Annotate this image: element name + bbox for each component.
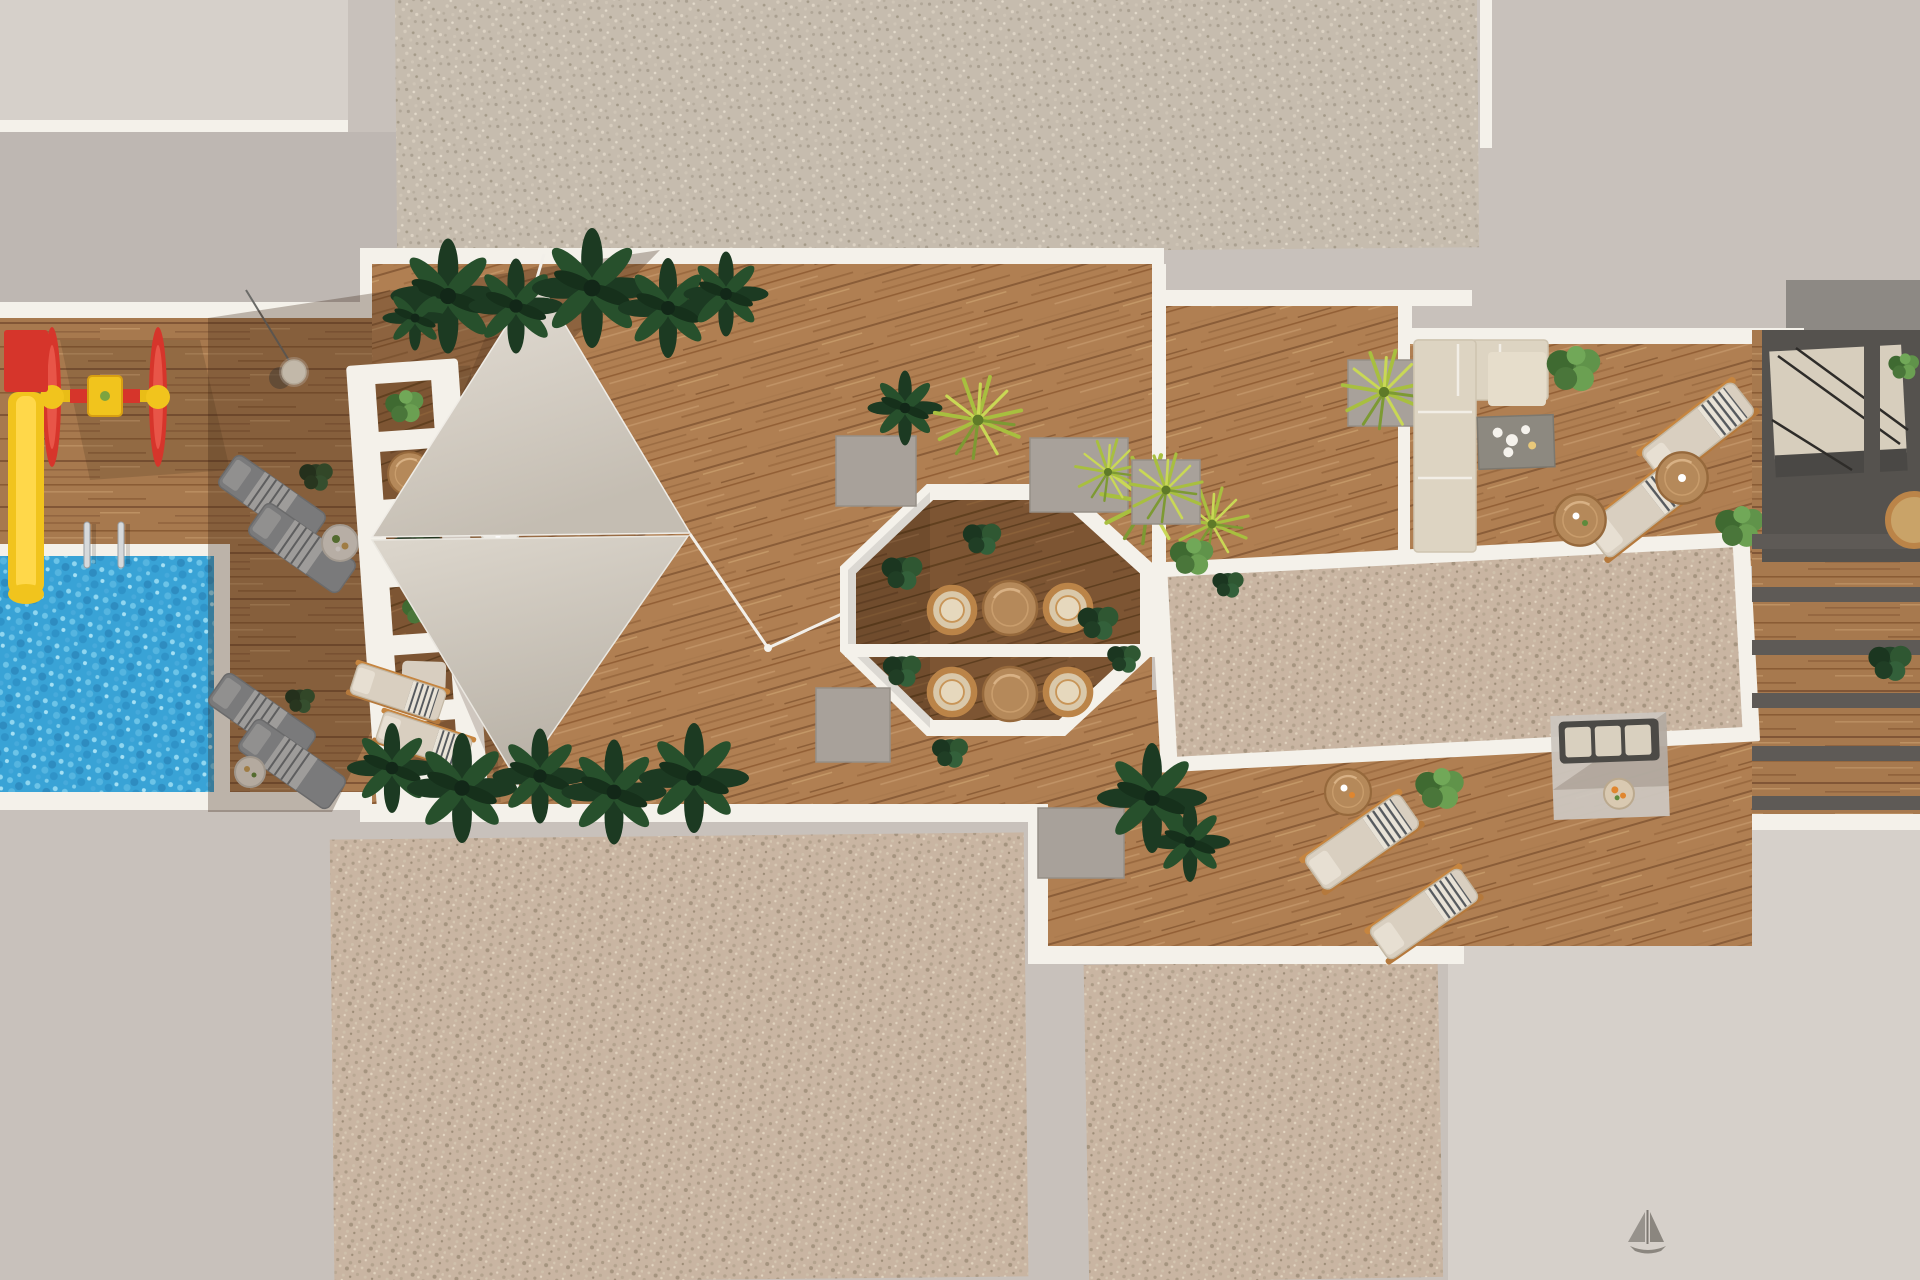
slide-tower (4, 330, 48, 392)
spinner-hub-dot (100, 391, 110, 401)
sail-anchor-post (764, 644, 772, 652)
coffee-table (1477, 415, 1555, 470)
spinner-cap-right (146, 385, 170, 409)
planter-box-1 (836, 436, 916, 506)
lounge-side-table-1 (1656, 452, 1707, 503)
top-right-dark-roof (1786, 280, 1920, 334)
bottom-gravel-roof-left (330, 832, 1029, 1280)
top-gravel-roof (395, 0, 1479, 257)
rooftop-terrace-render (0, 0, 1920, 1280)
spinner-axle-band-right (122, 389, 140, 403)
slide-end (8, 584, 44, 604)
framed-gravel-roof (1150, 531, 1760, 772)
playground-shadow (60, 340, 230, 480)
lower-side-table (1325, 769, 1371, 815)
curb-top-right (1480, 0, 1492, 148)
sofa-chaise (1488, 352, 1546, 406)
paving-upper-left (0, 0, 348, 122)
planter-box-3 (816, 688, 890, 762)
rug-table (1603, 778, 1634, 809)
rug-seating-set (1550, 712, 1670, 820)
strip-divider (1864, 330, 1880, 484)
slide-chute-inner (16, 396, 36, 590)
paving-below-curb (0, 132, 400, 304)
lounge-side-table-2 (1554, 494, 1605, 545)
planter-box-6 (1038, 808, 1124, 878)
spinner-axle-band-left (70, 389, 88, 403)
bottom-gravel-roof-right (1084, 959, 1443, 1280)
strip-rattan-table (1888, 494, 1920, 546)
curb-top-left (0, 120, 348, 132)
stair-landing (1769, 345, 1906, 460)
scene-canvas (0, 0, 1920, 1280)
